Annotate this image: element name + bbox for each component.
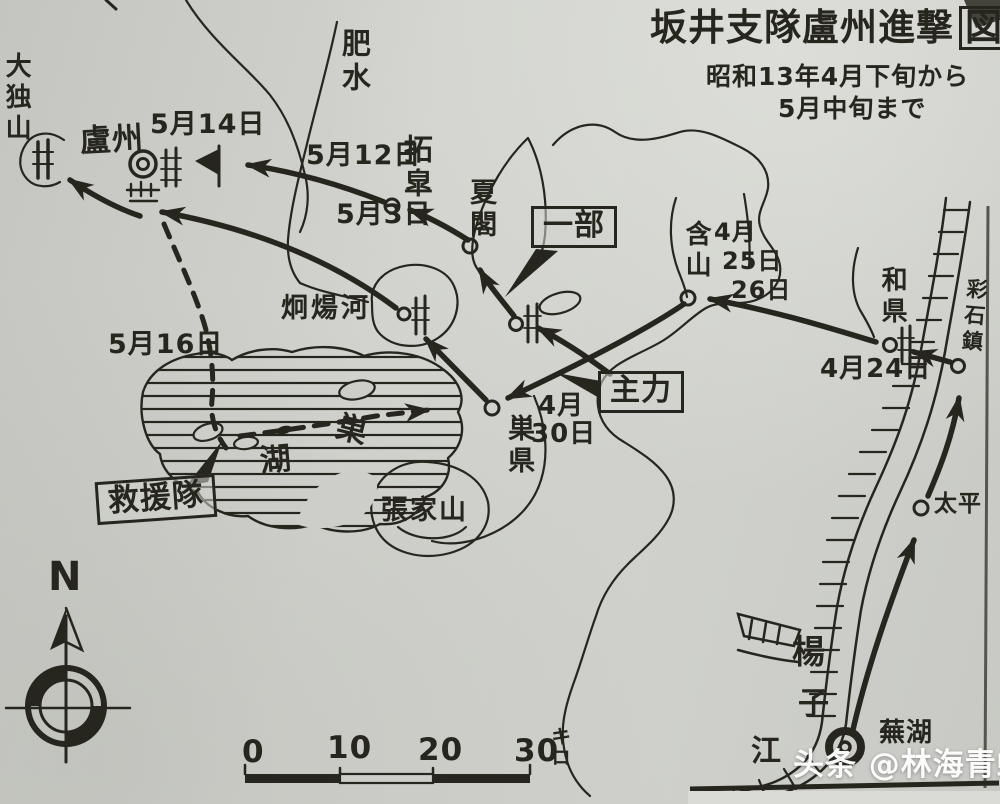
label-feishui: 肥水 xyxy=(338,28,369,96)
keiyoga-unit-symbol xyxy=(398,296,429,334)
label-zhegao: 拓皐 xyxy=(400,134,431,202)
compass-north-label: N xyxy=(48,556,82,599)
arrow-wuhu-to-taiping xyxy=(852,540,914,734)
ichibu-callout-wedge xyxy=(505,249,558,297)
river-spur-hatch-3 xyxy=(777,626,780,644)
scale-tick-20: 20 xyxy=(418,734,463,767)
label-yangtze-char3: 江 xyxy=(751,736,782,768)
callout-kyuentai: 救援隊 xyxy=(95,474,218,526)
scale-tick-0: 0 xyxy=(242,736,265,769)
frame-bottom-edge xyxy=(690,783,999,789)
label-xiage: 夏閣 xyxy=(466,178,495,242)
label-luzhou: 盧州 xyxy=(79,122,145,159)
label-date-0516: 5月16日 xyxy=(108,330,223,359)
page-margin-strip xyxy=(688,791,1000,804)
river-spur-shore xyxy=(738,650,798,662)
arrow-waken-to-hanshan xyxy=(710,299,876,342)
label-soken: 巣県 xyxy=(504,414,533,478)
callout-shuryoku: 主力 xyxy=(598,371,684,413)
corner-mark xyxy=(106,0,116,9)
caishi-town-circle xyxy=(952,360,965,373)
label-taiping: 太平 xyxy=(934,492,982,517)
label-waken: 和県 xyxy=(878,266,906,328)
label-date-0425-day2: 26日 xyxy=(731,278,791,304)
label-date-0425-month: 4月 xyxy=(714,220,757,246)
label-date-0514: 5月14日 xyxy=(150,110,265,139)
soken-town-circle xyxy=(485,401,499,415)
watermark: 头条 @林海青蛙 xyxy=(793,749,1000,782)
scale-unit-label: キロ xyxy=(548,726,570,768)
label-date-0424: 4月24日 xyxy=(820,355,931,383)
map-title-text: 坂井支隊盧州進撃 xyxy=(650,6,954,49)
label-zhangjiashan: 張家山 xyxy=(381,496,468,525)
map-page: 坂井支隊盧州進撃図 昭和13年4月下旬から 5月中旬まで 大独山 盧州 5月14… xyxy=(0,0,1000,804)
label-daitokuzan: 大独山 xyxy=(2,52,30,145)
label-yangtze-char1: 楊 xyxy=(792,634,826,670)
map-title-boxed-char: 図 xyxy=(959,6,1000,50)
compass-rose-icon xyxy=(6,608,130,762)
zhangjiashan-inner-contour xyxy=(398,527,466,538)
waken-outline xyxy=(853,248,874,337)
map-subtitle-2: 5月中旬まで xyxy=(778,95,926,122)
label-yangtze-char2: 子 xyxy=(798,688,830,721)
river-spur xyxy=(738,614,800,646)
label-date-0503: 5月3日 xyxy=(336,200,432,229)
label-date-0425-day1: 25日 xyxy=(722,249,782,275)
map-title: 坂井支隊盧州進撃図 xyxy=(650,6,1000,50)
taiping-town-circle xyxy=(914,501,928,515)
scale-tick-10: 10 xyxy=(327,732,372,765)
label-wuhu: 蕪湖 xyxy=(879,719,933,747)
hill-oval-east xyxy=(537,288,583,319)
river-spur-hatch-1 xyxy=(749,620,752,639)
callout-ichibu: 一部 xyxy=(531,206,617,248)
arrow-taiping-to-caishi xyxy=(928,398,959,496)
scale-bar xyxy=(245,765,530,783)
label-lake-ko: 湖 xyxy=(259,443,294,479)
label-keiyoga: 炯煬河 xyxy=(281,294,371,323)
map-subtitle-1: 昭和13年4月下旬から xyxy=(706,63,969,90)
label-date-0430-day: 30日 xyxy=(531,420,596,448)
ichibu-unit-symbol xyxy=(510,304,542,342)
label-date-0430-month: 4月 xyxy=(538,392,584,420)
label-hanshan: 含山 xyxy=(682,220,710,282)
arrow-luzhou-to-daitokuzan xyxy=(70,180,140,216)
hq-flag-icon xyxy=(195,146,219,186)
hanshan-town-circle xyxy=(681,291,695,305)
